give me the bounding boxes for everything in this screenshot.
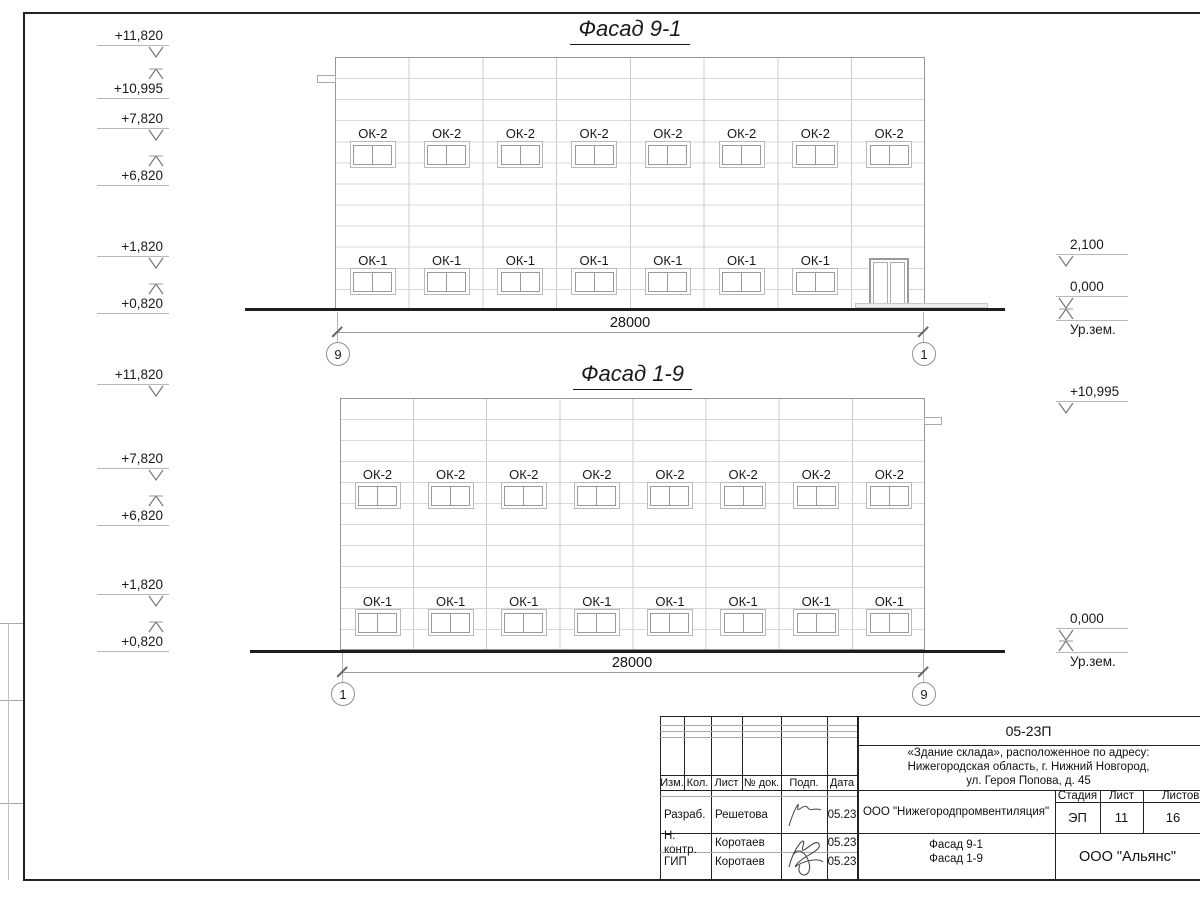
window-bay: ОК-1 [853, 595, 926, 636]
window-bay: ОК-2 [707, 468, 780, 509]
window-frame [796, 272, 835, 292]
stage-header: Стадия [1055, 790, 1100, 802]
stage-value: ЭП [1055, 802, 1100, 833]
window-pane [432, 487, 450, 505]
window-frame [724, 613, 763, 633]
date-cell: 05.23 [827, 852, 857, 871]
elevation-mark: +11,820 [93, 28, 171, 62]
window-pane [432, 614, 450, 632]
window [571, 141, 617, 168]
window-bay: ОК-2 [484, 127, 558, 168]
window-bay: ОК-2 [487, 468, 560, 509]
facade-9-1-title-text: Фасад 9-1 [570, 16, 689, 45]
extension-line [923, 312, 924, 343]
elevation-arrow-up-icon [147, 495, 165, 507]
window-bay: ОК-1 [631, 254, 705, 295]
window-bay: ОК-2 [853, 468, 926, 509]
window-label: ОК-1 [580, 254, 609, 268]
elevation-arrow-down-icon [147, 469, 165, 481]
window-frame [648, 145, 687, 165]
window-frame [797, 613, 836, 633]
window-pane [576, 273, 594, 291]
window [866, 141, 912, 168]
window-label: ОК-2 [363, 468, 392, 482]
role-cell: Н. контр. [664, 833, 710, 852]
window-pane [723, 146, 741, 164]
dimension-line [337, 332, 923, 333]
window-pane [450, 487, 469, 505]
elevation-value: +6,820 [121, 508, 163, 523]
col-header-kol: Кол. [684, 775, 711, 790]
window [428, 482, 474, 509]
window-label: ОК-1 [506, 254, 535, 268]
col-header-doc: № док. [742, 775, 781, 790]
axis-bubble-9: 9 [912, 682, 936, 706]
window-frame [353, 272, 392, 292]
elevation-arrow-up-icon [147, 621, 165, 633]
name-cell: Коротаев [715, 852, 779, 871]
entrance-door [869, 258, 909, 309]
facade-9-1-building: ОК-2 ОК-2 ОК-2 [335, 57, 925, 310]
window-label: ОК-2 [653, 127, 682, 141]
window-pane [596, 614, 615, 632]
elevation-value: +11,820 [115, 28, 163, 43]
elevation-mark: +0,820 [93, 621, 171, 655]
col-header-list: Лист [711, 775, 742, 790]
window-bay: ОК-1 [560, 595, 633, 636]
window-pane [359, 614, 377, 632]
window-label: ОК-1 [801, 254, 830, 268]
window-label: ОК-2 [580, 127, 609, 141]
window-frame [577, 486, 616, 506]
signature-scribble [781, 829, 829, 879]
window [424, 268, 470, 295]
window-bay: ОК-2 [410, 127, 484, 168]
name-cell: Коротаев [715, 833, 779, 852]
elevation-arrow-up-icon [1057, 308, 1075, 320]
door-leaf [890, 262, 905, 305]
window [501, 609, 547, 636]
window [355, 482, 401, 509]
window-frame [797, 486, 836, 506]
signature-scribble [783, 794, 825, 832]
window [719, 141, 765, 168]
elevation-shelf [97, 525, 169, 526]
extension-line [337, 312, 338, 343]
elevation-arrow-down-icon [147, 129, 165, 141]
window-row-ok2: ОК-2 ОК-2 ОК-2 [341, 468, 926, 509]
elevation-mark: +0,820 [93, 283, 171, 317]
dimension-line [342, 672, 923, 673]
window [571, 268, 617, 295]
window-pane [594, 273, 613, 291]
window [866, 482, 912, 509]
window-bay: ОК-1 [633, 595, 706, 636]
date-cell: 05.23 [827, 796, 857, 833]
elevation-arrow-down-icon [1057, 402, 1075, 414]
window-bay: ОК-1 [410, 254, 484, 295]
window [574, 609, 620, 636]
elevation-arrow-up-icon [147, 155, 165, 167]
window-frame [722, 145, 761, 165]
window-row-ok1: ОК-1 ОК-1 ОК-1 [336, 254, 852, 295]
window-pane [428, 146, 446, 164]
window-pane [723, 273, 741, 291]
window-bay: ОК-1 [780, 595, 853, 636]
door-leaf [873, 262, 888, 305]
window-bay: ОК-2 [557, 127, 631, 168]
window-pane [377, 487, 396, 505]
window-pane [741, 273, 760, 291]
margin-stamp-line [0, 700, 23, 701]
elevation-arrow-down-icon [147, 46, 165, 58]
window [428, 609, 474, 636]
window [350, 268, 396, 295]
window-label: ОК-2 [509, 468, 538, 482]
window-label: ОК-2 [728, 468, 757, 482]
window-frame [575, 145, 614, 165]
window-pane [446, 146, 465, 164]
window-pane [667, 273, 686, 291]
elevation-arrow-down-icon [147, 595, 165, 607]
elevation-arrow-down-icon [147, 257, 165, 269]
window [792, 141, 838, 168]
window-bay: ОК-1 [557, 254, 631, 295]
sheets-header: Листов [1162, 790, 1200, 802]
window-label: ОК-1 [728, 595, 757, 609]
window-pane [798, 614, 816, 632]
window-pane [505, 487, 523, 505]
window-pane [651, 487, 669, 505]
elevation-mark: +1,820 [93, 577, 171, 611]
window-label: ОК-1 [363, 595, 392, 609]
window [720, 482, 766, 509]
window-frame [431, 613, 470, 633]
window [793, 609, 839, 636]
window-pane [502, 146, 520, 164]
window-label: ОК-2 [802, 468, 831, 482]
title-block-line [711, 716, 712, 880]
ground-level-label: Ур.зем. [1070, 654, 1116, 669]
window-pane [741, 146, 760, 164]
window-pane [377, 614, 396, 632]
gutter-stub [317, 75, 336, 83]
window-pane [523, 614, 542, 632]
window [720, 609, 766, 636]
elevation-value: 0,000 [1070, 279, 1104, 294]
window-bay: ОК-2 [560, 468, 633, 509]
window-frame [796, 145, 835, 165]
ground-line [250, 650, 1005, 653]
window-label: ОК-2 [506, 127, 535, 141]
window [645, 268, 691, 295]
ground-level-mark: Ур.зем. [1054, 308, 1132, 342]
window-pane [797, 146, 815, 164]
window [793, 482, 839, 509]
window-pane [523, 487, 542, 505]
elevation-value: +1,820 [121, 577, 163, 592]
window-frame [501, 272, 540, 292]
drawing-title-line: Фасад 1-9 [857, 852, 1055, 866]
elevation-mark: +10,995 [93, 68, 171, 102]
window-pane [889, 146, 908, 164]
window-frame [353, 145, 392, 165]
elevation-value: +6,820 [121, 168, 163, 183]
window-frame [870, 613, 909, 633]
window-pane [649, 146, 667, 164]
window-pane [725, 487, 743, 505]
window-bay: ОК-2 [336, 127, 410, 168]
window-frame [577, 613, 616, 633]
window-frame [650, 486, 689, 506]
window-label: ОК-1 [582, 595, 611, 609]
window-frame [722, 272, 761, 292]
window-pane [520, 146, 539, 164]
window-pane [816, 614, 835, 632]
window-bay: ОК-2 [414, 468, 487, 509]
role-cell: Разраб. [664, 796, 710, 833]
window-label: ОК-2 [875, 127, 904, 141]
title-block-line [660, 737, 857, 738]
window-frame [427, 145, 466, 165]
elevation-mark: +7,820 [93, 451, 171, 485]
window [424, 141, 470, 168]
window-frame [431, 486, 470, 506]
elevation-mark: +10,995 [1054, 384, 1132, 418]
window-frame [504, 613, 543, 633]
window-pane [594, 146, 613, 164]
axis-bubble-1: 1 [331, 682, 355, 706]
window-frame [870, 486, 909, 506]
ground-level-label: Ур.зем. [1070, 322, 1116, 337]
project-code: 05-23П [857, 716, 1200, 745]
facade-1-9-title-text: Фасад 1-9 [573, 361, 692, 390]
facade-1-9-building: ОК-2 ОК-2 ОК-2 [340, 398, 925, 650]
window [574, 482, 620, 509]
window [497, 268, 543, 295]
window-bay: ОК-1 [341, 595, 414, 636]
col-header-izm: Изм. [660, 775, 684, 790]
window-pane [649, 273, 667, 291]
elevation-value: +7,820 [121, 451, 163, 466]
window-pane [578, 487, 596, 505]
window-label: ОК-2 [727, 127, 756, 141]
window-pane [797, 273, 815, 291]
window [501, 482, 547, 509]
window [355, 609, 401, 636]
title-block-line [660, 731, 857, 732]
elevation-value: 2,100 [1070, 237, 1104, 252]
window-bay: ОК-2 [341, 468, 414, 509]
window-label: ОК-2 [875, 468, 904, 482]
window-row-ok1: ОК-1 ОК-1 ОК-1 [341, 595, 926, 636]
elevation-value: +10,995 [114, 81, 163, 96]
window-pane [669, 487, 688, 505]
window-frame [648, 272, 687, 292]
window-pane [871, 146, 889, 164]
elevation-arrow-down-icon [1057, 255, 1075, 267]
window-pane [372, 146, 391, 164]
window-label: ОК-1 [509, 595, 538, 609]
design-org: ООО "Нижегородпромвентиляция" [857, 790, 1055, 833]
window-bay: ОК-1 [484, 254, 558, 295]
window-frame [358, 486, 397, 506]
window-pane [428, 273, 446, 291]
window-pane [520, 273, 539, 291]
window [647, 609, 693, 636]
window-frame [650, 613, 689, 633]
drawing-title-line: Фасад 9-1 [857, 838, 1055, 852]
elevation-value: +1,820 [121, 239, 163, 254]
window-label: ОК-2 [436, 468, 465, 482]
window-pane [446, 273, 465, 291]
window-pane [815, 273, 834, 291]
window-pane [725, 614, 743, 632]
window-frame [724, 486, 763, 506]
elevation-arrow-down-icon [147, 385, 165, 397]
elevation-mark: +6,820 [93, 155, 171, 189]
window-frame [427, 272, 466, 292]
window-bay: ОК-1 [779, 254, 853, 295]
col-header-data: Дата [827, 775, 857, 790]
window-pane [354, 273, 372, 291]
customer-company: ООО "Альянс" [1055, 833, 1200, 880]
window-pane [798, 487, 816, 505]
window-pane [354, 146, 372, 164]
col-header-podp: Подп. [781, 775, 827, 790]
window-bay: ОК-2 [780, 468, 853, 509]
window-bay: ОК-1 [707, 595, 780, 636]
window [645, 141, 691, 168]
window [647, 482, 693, 509]
window-frame [358, 613, 397, 633]
window [792, 268, 838, 295]
elevation-shelf [97, 185, 169, 186]
window-pane [596, 487, 615, 505]
window-label: ОК-2 [801, 127, 830, 141]
window-label: ОК-2 [655, 468, 684, 482]
elevation-shelf [97, 98, 169, 99]
sheet-header: Лист [1100, 790, 1143, 802]
elevation-arrow-up-icon [1057, 640, 1075, 652]
window-label: ОК-2 [582, 468, 611, 482]
margin-stamp-line [8, 623, 9, 880]
window-pane [576, 146, 594, 164]
elevation-arrow-up-icon [147, 68, 165, 80]
role-cell: ГИП [664, 852, 710, 871]
window-label: ОК-1 [875, 595, 904, 609]
gutter-stub [924, 417, 942, 425]
window-pane [889, 487, 908, 505]
project-address-line: Нижегородская область, г. Нижний Новгоро… [857, 760, 1200, 774]
window-label: ОК-1 [655, 595, 684, 609]
window-label: ОК-2 [358, 127, 387, 141]
sheets-total: 16 [1143, 802, 1200, 833]
window-bay: ОК-2 [633, 468, 706, 509]
window-pane [578, 614, 596, 632]
project-address-line: «Здание склада», расположенное по адресу… [857, 746, 1200, 760]
window-frame [575, 272, 614, 292]
margin-stamp-line [0, 623, 23, 624]
window-pane [743, 614, 762, 632]
window-pane [667, 146, 686, 164]
window-pane [359, 487, 377, 505]
elevation-mark: 2,100 [1054, 237, 1132, 271]
facade-1-9-title: Фасад 1-9 [340, 361, 925, 390]
window-bay: ОК-2 [631, 127, 705, 168]
window-bay: ОК-1 [487, 595, 560, 636]
ground-line [245, 308, 1005, 311]
elevation-mark: +6,820 [93, 495, 171, 529]
window [866, 609, 912, 636]
elevation-value: +11,820 [115, 367, 163, 382]
elevation-shelf [97, 651, 169, 652]
name-cell: Решетова [715, 796, 779, 833]
window-frame [870, 145, 909, 165]
window-label: ОК-2 [432, 127, 461, 141]
window-frame [504, 486, 543, 506]
dimension-value: 28000 [590, 315, 670, 331]
facade-9-1-title: Фасад 9-1 [335, 16, 925, 45]
elevation-value: 0,000 [1070, 611, 1104, 626]
window-pane [505, 614, 523, 632]
window-pane [669, 614, 688, 632]
elevation-value: +10,995 [1070, 384, 1119, 399]
elevation-shelf [1056, 320, 1128, 321]
window-label: ОК-1 [358, 254, 387, 268]
window-label: ОК-1 [436, 595, 465, 609]
frame-left-line [23, 12, 25, 881]
window-label: ОК-1 [653, 254, 682, 268]
window-bay: ОК-1 [336, 254, 410, 295]
window-pane [743, 487, 762, 505]
ground-level-mark: Ур.зем. [1054, 640, 1132, 674]
drawing-sheet: Фасад 9-1 ОК-2 ОК-2 [0, 0, 1200, 900]
window-pane [450, 614, 469, 632]
elevation-shelf [1056, 652, 1128, 653]
window [719, 268, 765, 295]
sheet-number: 11 [1100, 802, 1143, 833]
window-pane [889, 614, 908, 632]
window-pane [871, 487, 889, 505]
window-label: ОК-1 [432, 254, 461, 268]
window-bay: ОК-2 [779, 127, 853, 168]
window-frame [501, 145, 540, 165]
title-block-line [660, 725, 857, 726]
window-bay: ОК-2 [852, 127, 926, 168]
elevation-shelf [97, 313, 169, 314]
elevation-value: +0,820 [121, 634, 163, 649]
frame-top-line [23, 12, 1200, 14]
window-pane [815, 146, 834, 164]
window-pane [372, 273, 391, 291]
window-row-ok2: ОК-2 ОК-2 ОК-2 [336, 127, 926, 168]
elevation-mark: +7,820 [93, 111, 171, 145]
window-bay: ОК-2 [705, 127, 779, 168]
window-pane [651, 614, 669, 632]
project-address-line: ул. Героя Попова, д. 45 [857, 774, 1200, 788]
elevation-value: +0,820 [121, 296, 163, 311]
window-pane [502, 273, 520, 291]
elevation-value: +7,820 [121, 111, 163, 126]
window-pane [816, 487, 835, 505]
dimension-value: 28000 [592, 655, 672, 671]
date-cell: 05.23 [827, 833, 857, 852]
window-bay: ОК-1 [414, 595, 487, 636]
window-bay: ОК-1 [705, 254, 779, 295]
window-pane [871, 614, 889, 632]
window [350, 141, 396, 168]
